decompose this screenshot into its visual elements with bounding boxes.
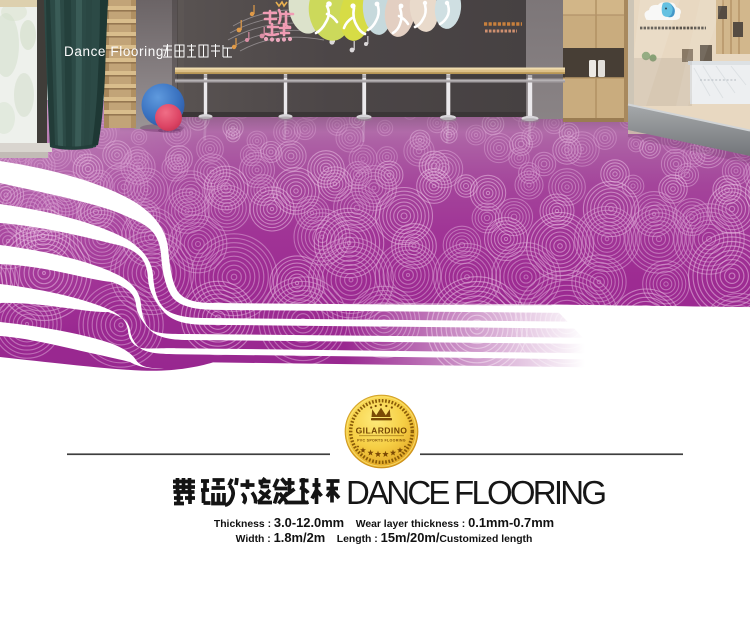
svg-text:DANCE FLOORING: DANCE FLOORING	[346, 474, 607, 511]
svg-text:Dance Flooring/: Dance Flooring/	[64, 44, 168, 59]
svg-text:GILARDINO: GILARDINO	[356, 426, 408, 436]
svg-text:PVC SPORTS FLOORING: PVC SPORTS FLOORING	[357, 439, 406, 443]
